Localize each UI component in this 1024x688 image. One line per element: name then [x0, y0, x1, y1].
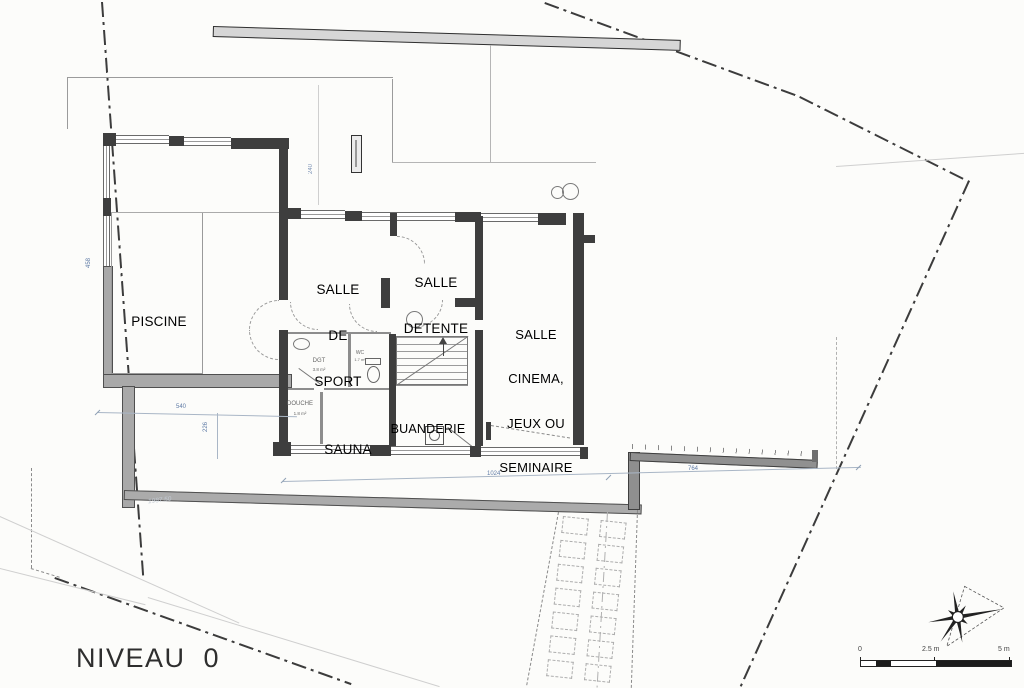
label-line: PISCINE [131, 314, 186, 329]
wall-exterior-right [573, 213, 584, 445]
stepping-stone [546, 659, 574, 679]
room-label-salle-cinema: SALLE CINEMA, JEUX OU SEMINAIRE [499, 298, 572, 505]
dimension-line-offset [217, 413, 218, 459]
stepping-stone [561, 516, 589, 536]
label-line: BUANDERIE [391, 422, 466, 436]
window-band [103, 146, 110, 198]
wall-thin [288, 388, 314, 390]
room-label-douche: DOUCHE [287, 401, 313, 407]
room-label-sauna: SAUNA [324, 411, 372, 488]
window-band [362, 212, 455, 221]
window-band [184, 137, 231, 146]
label-line: CINEMA, [499, 372, 572, 387]
washbasin [293, 338, 310, 350]
wall-segment [470, 446, 481, 457]
terrace-edge-top [67, 77, 393, 78]
stepping-stone [597, 544, 625, 564]
dimension-terrace-depth: 240 [308, 164, 314, 174]
stepping-stone [549, 635, 577, 655]
wall-segment [273, 442, 291, 456]
label-line: SAUNA [324, 442, 372, 457]
contour-line [0, 568, 146, 605]
room-label-piscine: PISCINE [131, 283, 186, 360]
label-line: SALLE [314, 282, 361, 297]
label-line: SALLE [499, 328, 572, 343]
level-title: NIVEAU 0 [76, 643, 220, 674]
window-band [481, 213, 538, 222]
window-band [116, 135, 169, 144]
retaining-wall-top [213, 26, 681, 51]
wall-segment [381, 278, 390, 308]
stair-landing-line [396, 385, 468, 386]
wall-segment [169, 136, 184, 146]
scale-zero: 0 [858, 646, 862, 653]
stepping-stone [584, 663, 612, 683]
door-arc [249, 330, 279, 360]
wall-segment [580, 447, 588, 459]
stepping-stone [556, 564, 584, 584]
stepping-stones [545, 516, 632, 688]
wall-segment [370, 445, 391, 456]
wall-segment [279, 143, 288, 300]
stepping-stone [594, 568, 622, 588]
wall-segment [103, 198, 111, 216]
toilet-bowl [367, 366, 380, 383]
label-line: SALLE [404, 275, 468, 290]
window-band [103, 216, 110, 266]
setback-line-dashed [836, 337, 837, 469]
dimension-right-wall: 764 [688, 466, 698, 472]
contour-line [836, 153, 1024, 167]
stepping-stone [599, 520, 627, 540]
property-boundary-top-right-b [799, 96, 970, 183]
retaining-wall-end-stub [812, 450, 818, 462]
pool-deck-line [111, 212, 279, 213]
stepping-stone [591, 592, 619, 612]
wall-segment [103, 133, 116, 146]
floor-plan-page: DGT 3.8 m² WC 1.7 m² DOUCHE 1.8 m² 1024 … [0, 0, 1024, 688]
wall-cinema-left-lower [475, 330, 483, 446]
terrace-edge-left [67, 77, 68, 129]
stepping-stone [586, 639, 614, 659]
wall-segment [345, 211, 362, 221]
path-edge-right [631, 510, 638, 688]
dimension-left-offset: 226 [203, 422, 209, 432]
dimension-tick [606, 475, 612, 481]
room-label-buanderie: BUANDERIE [391, 393, 466, 464]
label-line: JEUX OU [499, 417, 572, 432]
stepping-stone [559, 540, 587, 560]
window-band [301, 210, 345, 219]
property-boundary-left-dashed [31, 468, 32, 568]
dimension-piscine-side: 458 [86, 258, 92, 268]
wall-segment [288, 208, 301, 219]
stepping-stone [589, 615, 617, 635]
wall-stub [584, 235, 595, 243]
dimension-line-terrace-depth [318, 85, 319, 205]
label-line: SPORT [314, 374, 361, 389]
wall-segment [538, 213, 566, 225]
wall-sport-detente [390, 213, 397, 236]
label-line: SEMINAIRE [499, 461, 572, 476]
elevation-note: 1987.50 [148, 496, 172, 506]
room-label-salle-detente: SALLE DETENTE [404, 244, 468, 367]
stepping-stone [551, 611, 579, 631]
toilet-tank [365, 358, 381, 365]
label-line: DETENTE [404, 321, 468, 336]
room-label-salle-de-sport: SALLE DE SPORT [314, 251, 361, 420]
label-line: DE [314, 328, 361, 343]
compass-north-icon [901, 564, 1015, 672]
stepping-stone [554, 588, 582, 608]
wall-cinema-left-upper [475, 216, 483, 320]
door-arc [249, 300, 279, 330]
dimension-left-terrace: 540 [176, 404, 186, 410]
wall-segment [279, 330, 288, 444]
